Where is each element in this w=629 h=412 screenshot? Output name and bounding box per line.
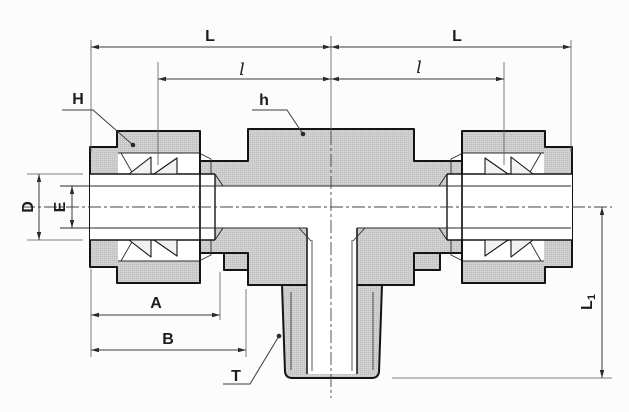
- label-B: B: [162, 331, 174, 348]
- label-T: T: [231, 368, 241, 385]
- label-A: A: [150, 295, 162, 312]
- label-h: h: [259, 92, 269, 109]
- label-H: H: [72, 91, 84, 108]
- branch-bore: [307, 228, 357, 374]
- label-l-left: l: [239, 60, 244, 80]
- technical-drawing-page: L L l l A B D: [0, 0, 629, 412]
- label-L-right: L: [452, 28, 462, 45]
- label-l-right: l: [416, 58, 421, 78]
- label-E: E: [52, 201, 69, 212]
- label-L-left: L: [205, 28, 215, 45]
- branch-tee-section-drawing: L L l l A B D: [0, 0, 629, 412]
- label-D: D: [20, 201, 37, 213]
